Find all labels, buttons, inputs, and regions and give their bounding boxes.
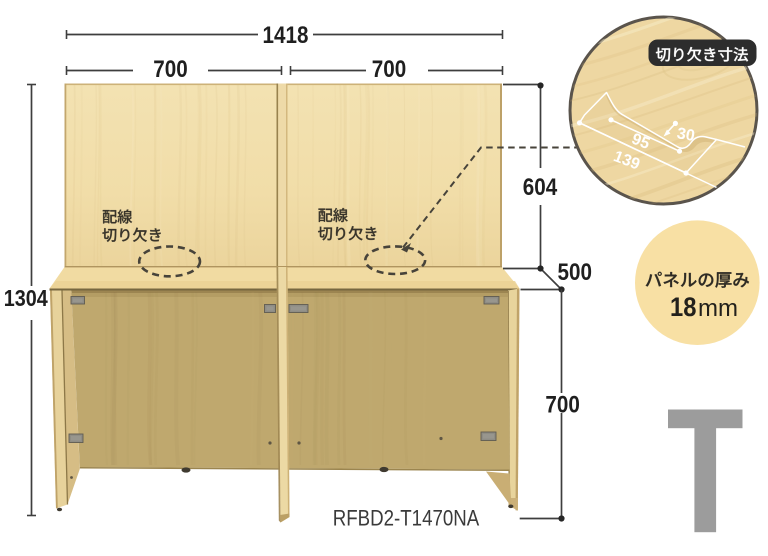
svg-text:1418: 1418 bbox=[263, 22, 309, 49]
svg-text:30: 30 bbox=[676, 125, 697, 145]
svg-text:700: 700 bbox=[545, 391, 579, 418]
svg-text:mm: mm bbox=[698, 295, 738, 322]
svg-text:1304: 1304 bbox=[4, 286, 48, 312]
svg-text:RFBD2-T1470NA: RFBD2-T1470NA bbox=[333, 507, 480, 531]
svg-text:700: 700 bbox=[372, 56, 406, 83]
svg-text:604: 604 bbox=[523, 174, 558, 201]
svg-text:18: 18 bbox=[670, 293, 696, 323]
svg-text:500: 500 bbox=[558, 259, 592, 286]
svg-text:700: 700 bbox=[153, 56, 187, 83]
